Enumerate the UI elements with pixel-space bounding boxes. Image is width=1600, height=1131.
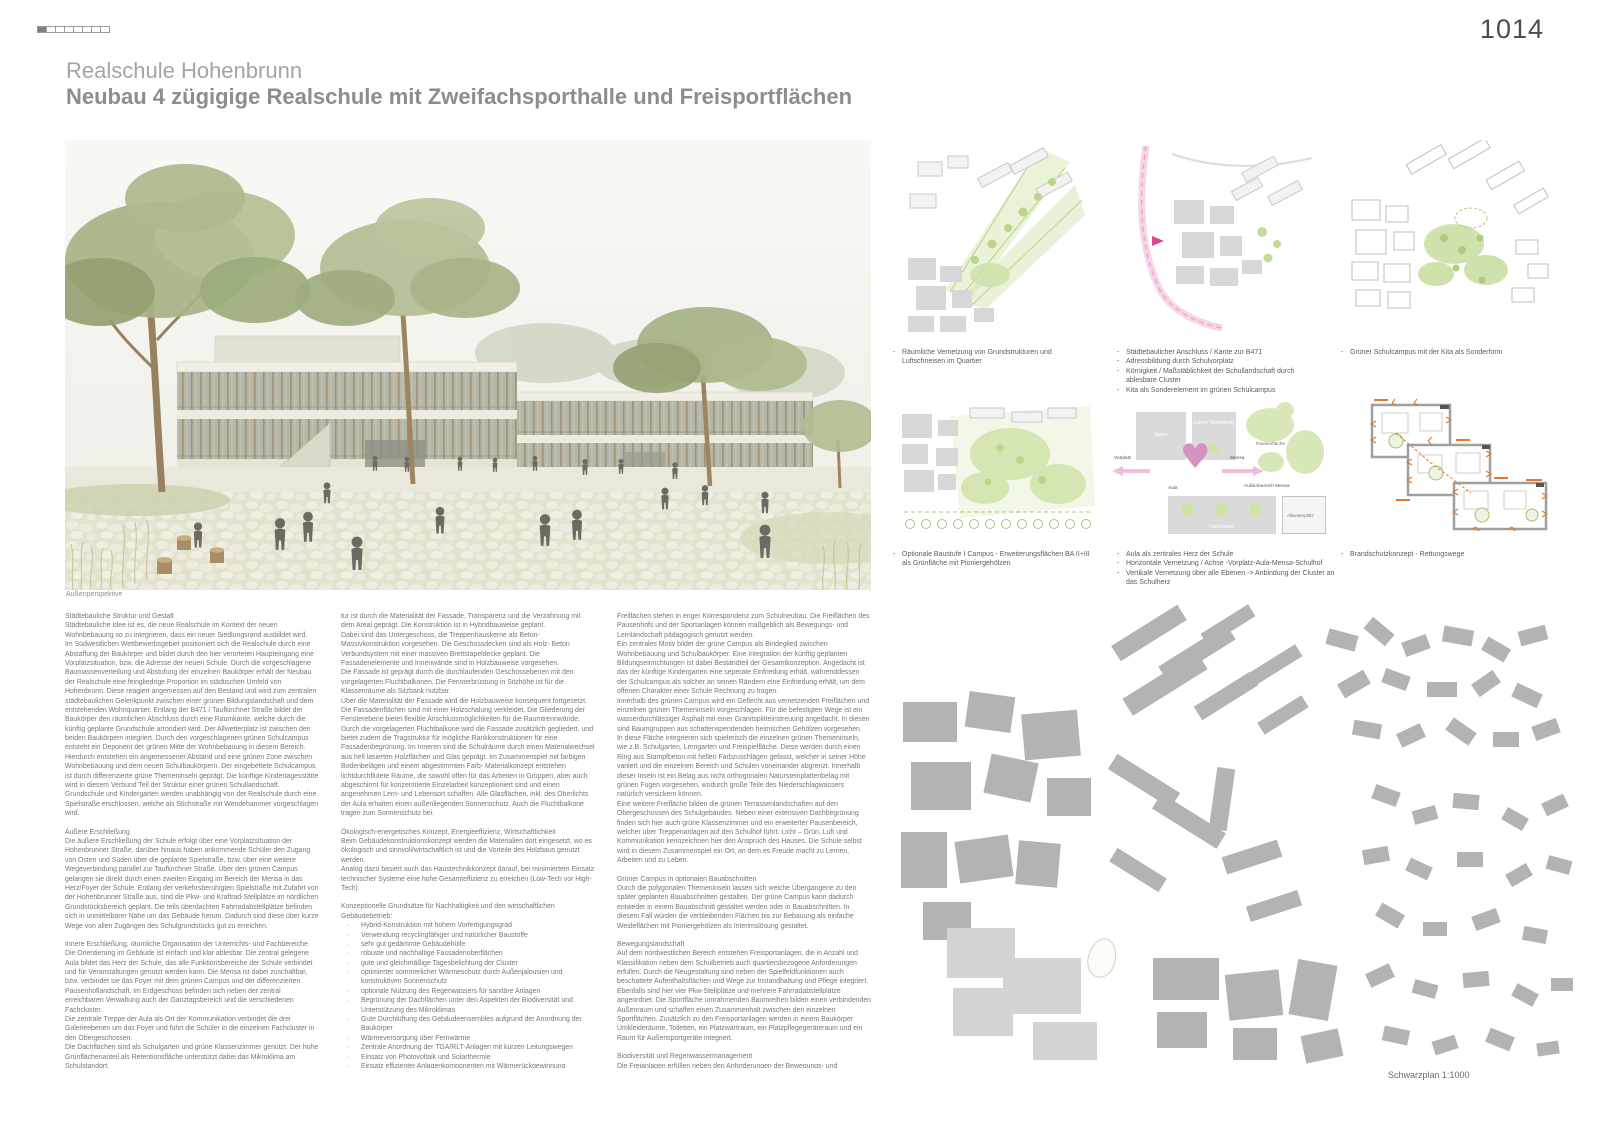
paragraph: Beim Gebäudekonstruktionskonzept werden … — [341, 837, 595, 865]
building-footprint — [983, 753, 1038, 802]
building-footprint — [1021, 710, 1081, 761]
project-subtitle: Neubau 4 zügigige Realschule mit Zweifac… — [66, 84, 852, 110]
building-footprint — [1481, 637, 1511, 663]
text-column: tur ist durch die Materialität der Fassa… — [341, 612, 595, 1068]
registration-cell — [100, 26, 110, 33]
paragraph: Über die Materialität der Fassade wird d… — [341, 697, 595, 819]
paragraph: Die Orientierung im Gebäude ist einfach … — [65, 949, 319, 1015]
diagram-school-heart: Sport Lehrer Verwaltung Vorplatz ♥ Aula … — [1108, 396, 1330, 541]
section-heading: Äußere Erschließung — [65, 828, 319, 837]
lehrer-label: Lehrer Verwaltung — [1192, 420, 1236, 426]
paragraph: Die Fassade ist geprägt durch die durchl… — [341, 668, 595, 696]
mensa-label: Mensa — [1230, 456, 1244, 461]
diagram-caption-line: -Brandschutzkonzept - Rettungswege — [1341, 550, 1559, 559]
bullet-item: ·robuste und nachhaltige Fassadenoberflä… — [341, 949, 595, 958]
heart-icon: ♥ — [1180, 440, 1210, 474]
building-footprint — [1153, 958, 1219, 1000]
paragraph: Auf dem nordwestlichen Bereich entstehen… — [617, 949, 871, 1043]
building-footprint — [1382, 1025, 1411, 1045]
plan-outline — [1372, 405, 1546, 529]
diagram-fire-safety — [1336, 393, 1560, 538]
building-footprint — [1352, 720, 1382, 740]
building-footprint — [954, 834, 1013, 883]
building-footprint — [1396, 723, 1426, 748]
building-footprint — [1257, 695, 1309, 734]
section-heading: Innere Erschließung, räumliche Organisat… — [65, 940, 319, 949]
diagram-caption-line: -Horizontale Vernetzung / Achse -Vorplat… — [1117, 559, 1335, 568]
building-footprint — [1337, 670, 1371, 699]
building-footprint — [1541, 794, 1569, 817]
paragraph: Die äußere Erschließung der Schule erfol… — [65, 837, 319, 931]
bullet-item: ·Verwendung recyclingfähiger und natürli… — [341, 931, 595, 940]
building-footprint — [1423, 922, 1447, 936]
paragraph: tur ist durch die Materialität der Fassa… — [341, 612, 595, 631]
green-square — [1250, 504, 1261, 515]
building-footprint — [903, 702, 957, 742]
building-footprint — [1511, 983, 1539, 1007]
sport-block: Sport — [1136, 412, 1186, 460]
diagram-caption: -Räumliche Vernetzung von Grundstrukture… — [893, 348, 1093, 367]
text-column: Städtebauliche Struktur und GestaltStädt… — [65, 612, 319, 1068]
diagram-caption-line: -Kita als Sonderelement im grünen Schulc… — [1117, 386, 1327, 395]
building-footprint — [911, 762, 971, 810]
building-footprint — [1442, 626, 1474, 647]
bullet-item: ·Hybrid-Konstruktion mit hohem Vorfertig… — [341, 921, 595, 930]
bullet-item: ·Gute Durchlüftung des Gebäudeensembles … — [341, 1015, 595, 1034]
text-column: Freiflächen stehen in enger Korresponden… — [617, 612, 871, 1068]
diagram-6-scene — [1336, 393, 1560, 538]
building-footprint — [1471, 908, 1501, 931]
diagram-2-scene — [1112, 140, 1324, 345]
section-heading: Bewegungslandschaft — [617, 940, 871, 949]
fachcluster-label: Fachcluster — [1168, 524, 1276, 530]
paragraph: Konzeptionelle Grundsätze für Nachhaltig… — [341, 902, 595, 921]
building-footprint — [1325, 628, 1358, 651]
bullet-item: ·Zentrale Anordnung der TGA/RLT-Anlagen … — [341, 1043, 595, 1052]
building-footprint — [1522, 926, 1548, 944]
section-heading: Städtebauliche Struktur und Gestalt — [65, 612, 319, 621]
building-footprint — [1233, 1028, 1277, 1060]
registration-marks — [38, 26, 110, 33]
pausenflaeche-label: Pausenfläche — [1256, 442, 1285, 447]
project-title: Realschule Hohenbrunn — [66, 58, 302, 84]
building-footprint — [1209, 767, 1235, 831]
green-square — [1216, 504, 1227, 515]
pioneer-trees-row — [906, 520, 1091, 529]
paragraph: Durch die polygonalen Themeninseln lasse… — [617, 884, 871, 931]
paragraph: Die zentrale Treppe der Aula als Ort der… — [65, 1015, 319, 1043]
pause-blob — [1258, 452, 1284, 472]
diagram-caption-line: -Aula als zentrales Herz der Schule — [1117, 550, 1335, 559]
sport-label: Sport — [1136, 432, 1186, 438]
diagram-construction-stages — [890, 396, 1102, 541]
axis-arrow-right-icon — [1222, 466, 1264, 476]
building-footprint — [1157, 1012, 1207, 1048]
diagram-caption-line: -Optionale Baustufe I Campus - Erweiteru… — [893, 550, 1093, 569]
building-footprint — [901, 832, 947, 888]
text-columns: Städtebauliche Struktur und GestaltStädt… — [65, 612, 871, 1068]
diagram-caption: -Aula als zentrales Herz der Schule-Hori… — [1117, 550, 1335, 588]
bullet-item: ·gute und gleichmäßige Tagesbelichtung d… — [341, 959, 595, 968]
building-footprint — [1485, 1028, 1515, 1052]
perspective-caption: Außenperspektive — [66, 591, 122, 598]
diagram-caption-line: -Grüner Schulcampus mit der Kita als Son… — [1341, 348, 1559, 357]
paragraph: Ein zentrales Motiv bildet der grüne Cam… — [617, 640, 871, 696]
building-footprint — [1536, 1041, 1560, 1057]
paragraph: Innerhalb des grünen Campus wird ein Gef… — [617, 697, 871, 735]
entrance-marker — [1152, 236, 1164, 246]
building-footprint — [1194, 672, 1258, 721]
building-footprint — [1518, 625, 1549, 647]
building-footprint — [1288, 959, 1337, 1021]
building-footprint — [1431, 1035, 1458, 1056]
building-footprint — [1301, 1028, 1344, 1063]
section-heading: Biodiversität und Regenwassermanagement — [617, 1052, 871, 1061]
bullet-item: ·Wärmeversorgung über Fernwärme — [341, 1034, 595, 1043]
entry-number: 1014 — [1480, 14, 1544, 45]
building-footprint — [1405, 858, 1433, 881]
paragraph: In diese Fläche integrieren sich spieler… — [617, 734, 871, 800]
building-footprint — [1445, 717, 1477, 745]
paragraph: Freiflächen stehen in enger Korresponden… — [617, 612, 871, 640]
section-heading: Ökologisch-energetisches Konzept, Energi… — [341, 828, 595, 837]
aussenbereich-label: Außenbereich Mensa — [1244, 484, 1290, 489]
building-footprint — [1225, 969, 1284, 1020]
building-footprint — [965, 691, 1016, 733]
bullet-item: ·sehr gut gedämmte Gebäudehülle — [341, 940, 595, 949]
building-footprint — [1412, 979, 1439, 999]
diagram-4-scene — [890, 396, 1102, 541]
kita-special-element — [1455, 208, 1487, 228]
bullet-item: ·Begrünung der Dachflächen unter den Asp… — [341, 996, 595, 1015]
diagram-1-scene — [890, 140, 1102, 345]
school-blocks — [902, 414, 958, 492]
diagram-caption-line: -Adressbildung durch Schulvorplatz — [1117, 357, 1327, 366]
building-footprint — [1222, 839, 1283, 874]
pause-blob — [1286, 430, 1324, 474]
vorplatz-label: Vorplatz — [1114, 456, 1131, 461]
diagram-caption: -Brandschutzkonzept - Rettungswege — [1341, 550, 1559, 559]
allwetterplatz-label: Allwetterplatz — [1287, 513, 1314, 518]
diagram-urban-edge — [1112, 140, 1324, 345]
building-footprint — [1471, 670, 1501, 697]
exterior-perspective-rendering — [65, 140, 871, 590]
bullet-item: ·Einsatz von Photovoltaik und Solartherm… — [341, 1053, 595, 1062]
building-footprint — [1462, 971, 1489, 988]
outline-buildings — [1352, 140, 1548, 308]
diagram-caption: -Städtebaulicher Anschluss / Kante zur B… — [1117, 348, 1327, 395]
section-heading: Grüner Campus in optionalen Bauabschnitt… — [617, 875, 871, 884]
building-footprint — [1109, 848, 1167, 892]
building-footprint — [1362, 846, 1390, 865]
pond-shape — [1084, 935, 1121, 981]
building-footprint — [1363, 617, 1394, 646]
building-footprint — [1452, 793, 1479, 810]
paragraph: Eine weitere Freifläche bilden die grüne… — [617, 800, 871, 866]
diagram-caption: -Grüner Schulcampus mit der Kita als Son… — [1341, 348, 1559, 357]
building-footprint — [1111, 605, 1187, 662]
paragraph: Die Freianlagen erfüllen neben den Anfor… — [617, 1062, 871, 1068]
paragraph: Städtebauliche Idee ist es, die neue Rea… — [65, 621, 319, 640]
diagram-caption-line: -Städtebaulicher Anschluss / Kante zur B… — [1117, 348, 1327, 357]
building-footprint — [1371, 784, 1401, 807]
pause-blob — [1276, 402, 1294, 418]
diagram-caption-line: -Körnigkeit / Maßstäblichkeit der Schull… — [1117, 367, 1327, 386]
aula-label: Aula — [1168, 486, 1178, 491]
bullet-item: ·Einsatz effizienter Anlagenkomponenten … — [341, 1062, 595, 1068]
schwarzplan-label: Schwarzplan 1:1000 — [1388, 1070, 1470, 1080]
building-footprint — [1511, 683, 1543, 708]
building-footprint — [1457, 852, 1483, 867]
building-footprint — [1015, 840, 1061, 887]
diagram-3-scene — [1336, 140, 1560, 345]
building-footprint — [1033, 1022, 1097, 1060]
allwetterplatz-block: Allwetterplatz — [1282, 496, 1326, 534]
building-footprint — [1248, 644, 1303, 686]
fachcluster-block: Fachcluster — [1168, 496, 1276, 534]
building-footprint — [1427, 682, 1457, 697]
building-footprint — [1531, 718, 1561, 741]
bullet-item: ·optimierter sommerlicher Wärmeschutz du… — [341, 968, 595, 987]
building-footprint — [1375, 903, 1405, 929]
neighbour-buildings — [1231, 156, 1302, 205]
paragraph: Analog dazu basiert auch das Haustechnik… — [341, 865, 595, 893]
building-footprint — [1365, 963, 1395, 988]
diagram-spatial-network — [890, 140, 1102, 345]
building-footprint — [1381, 668, 1411, 691]
building-footprint — [1546, 855, 1573, 875]
paragraph: Dabei sind das Untergeschoss, die Treppe… — [341, 631, 595, 669]
green-patches — [1257, 227, 1281, 263]
building-footprint — [1047, 778, 1091, 816]
diagram-caption-line: -Vertikale Vernetzung über alle Ebenen -… — [1117, 569, 1335, 588]
building-footprint — [953, 988, 1013, 1036]
building-footprint — [1505, 863, 1533, 887]
diagram-green-campus — [1336, 140, 1560, 345]
competition-board: 1014 Realschule Hohenbrunn Neubau 4 zügi… — [0, 0, 1600, 1131]
schwarzplan-canvas — [895, 610, 1570, 1065]
building-footprint — [1551, 978, 1573, 991]
school-cluster — [1174, 200, 1262, 286]
building-footprint — [1412, 805, 1439, 825]
building-footprint — [1501, 807, 1529, 831]
bullet-item: ·optionale Nutzung des Regenwassers für … — [341, 987, 595, 996]
green-square — [1182, 504, 1193, 515]
building-footprint — [1246, 890, 1302, 922]
green-islands — [1418, 224, 1508, 286]
building-footprint — [1003, 958, 1081, 1014]
perspective-scene — [65, 140, 871, 590]
diagram-caption: -Optionale Baustufe I Campus - Erweiteru… — [893, 550, 1093, 569]
diagram-caption-line: -Räumliche Vernetzung von Grundstrukture… — [893, 348, 1093, 367]
axis-arrow-left-icon — [1112, 466, 1150, 476]
building-footprint — [1401, 634, 1431, 657]
paragraph: Im Südwestlichen Wettbewerbsgebiet posit… — [65, 640, 319, 818]
building-footprint — [1493, 732, 1519, 747]
paragraph: Die Dachflächen sind als Schulgarten und… — [65, 1043, 319, 1068]
